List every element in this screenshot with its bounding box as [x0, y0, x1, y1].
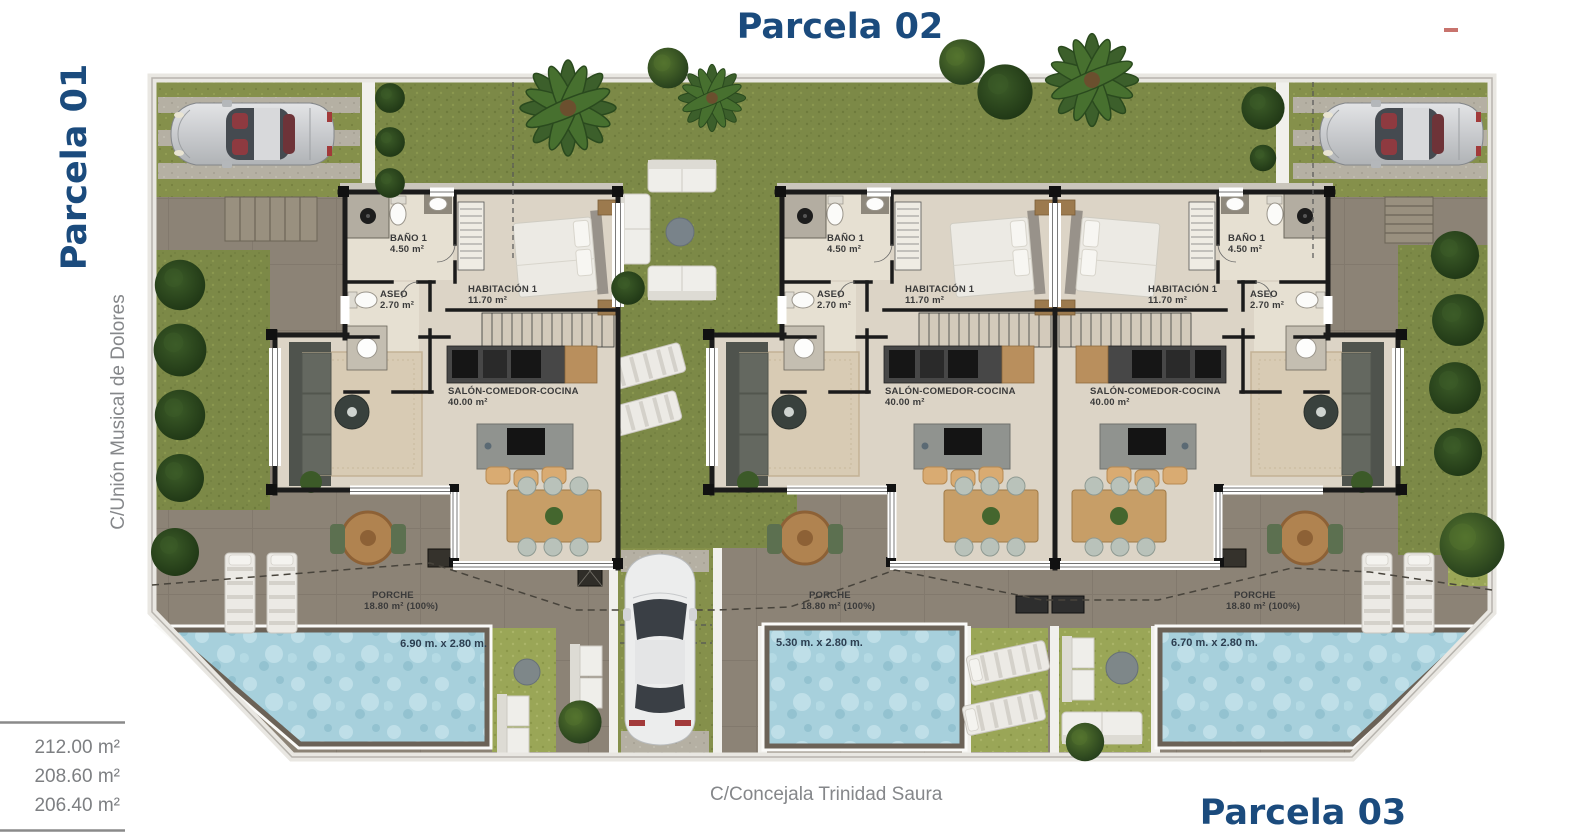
label-aseo-area: 2.70 m²: [1250, 300, 1284, 311]
label-habitacion: HABITACIÓN 1: [905, 283, 975, 295]
label-bano: BAÑO 1: [827, 233, 865, 244]
tree-icon: [1432, 294, 1484, 346]
label-bano-area: 4.50 m²: [827, 244, 861, 255]
label-porche: PORCHE: [809, 590, 851, 601]
car-bottom-center: [623, 554, 697, 745]
label-habitacion-area: 11.70 m²: [468, 295, 507, 306]
title-parcela-01: Parcela 01: [55, 64, 95, 271]
bush-icon: [375, 127, 405, 157]
label-aseo: ASEO: [817, 289, 845, 300]
tree-icon: [154, 324, 207, 377]
tree-icon: [156, 454, 204, 502]
round-garden-table: [666, 218, 694, 246]
label-salon: SALÓN-COMEDOR-COCINA: [885, 385, 1016, 397]
label-porche: PORCHE: [1234, 590, 1276, 601]
tree-icon: [939, 39, 985, 85]
street-name-bottom: C/Concejala Trinidad Saura: [710, 784, 943, 805]
outdoor-sofa: [648, 160, 716, 192]
bush-icon: [151, 528, 199, 576]
label-porche: PORCHE: [372, 590, 414, 601]
bush-icon: [1066, 723, 1104, 761]
tree-icon: [1434, 428, 1482, 476]
label-habitacion: HABITACIÓN 1: [1148, 283, 1218, 295]
label-salon-area: 40.00 m²: [885, 397, 925, 408]
sun-lounger: [267, 553, 297, 633]
area-row-2: 208.60 m²: [34, 766, 120, 787]
pool-dimension-middle: 5.30 m. x 2.80 m.: [776, 637, 863, 649]
tree-icon: [1440, 513, 1505, 578]
label-aseo-area: 2.70 m²: [817, 300, 851, 311]
label-bano-area: 4.50 m²: [390, 244, 424, 255]
label-porche-area: 18.80 m² (100%): [364, 601, 438, 612]
label-aseo-area: 2.70 m²: [380, 300, 414, 311]
palm-tree-icon: [1046, 34, 1139, 127]
label-bano: BAÑO 1: [390, 233, 428, 244]
title-parcela-03: Parcela 03: [1200, 793, 1407, 833]
label-porche-area: 18.80 m² (100%): [1226, 601, 1300, 612]
bush-icon: [375, 168, 405, 198]
pool-dimension-left: 6.90 m. x 2.80 m.: [400, 638, 487, 650]
sun-lounger: [1362, 553, 1392, 633]
area-row-3: 206.40 m²: [34, 795, 120, 816]
label-aseo: ASEO: [380, 289, 408, 300]
tree-icon: [1431, 231, 1479, 279]
bush-icon: [558, 700, 601, 743]
bush-icon: [375, 83, 405, 113]
tree-icon: [648, 48, 689, 89]
areas-table: 212.00 m² 208.60 m² 206.40 m²: [0, 723, 125, 831]
bush-icon: [611, 271, 645, 305]
entry-steps-right: [1385, 197, 1433, 243]
bush-icon: [1250, 145, 1276, 171]
car-top-left: [171, 100, 334, 168]
palm-tree-icon: [678, 64, 745, 131]
tree-icon: [977, 64, 1032, 119]
garden-top-right: [782, 78, 1287, 195]
label-salon: SALÓN-COMEDOR-COCINA: [448, 385, 579, 397]
site-plan-drawing: BAÑO 1 4.50 m² ASEO 2.70 m² HABITACIÓN 1…: [0, 0, 1574, 839]
entry-steps-left: [225, 197, 317, 241]
label-porche-area: 18.80 m² (100%): [801, 601, 875, 612]
label-salon-area: 40.00 m²: [1090, 397, 1130, 408]
label-habitacion: HABITACIÓN 1: [468, 283, 538, 295]
bush-icon: [1241, 86, 1284, 129]
label-salon: SALÓN-COMEDOR-COCINA: [1090, 385, 1221, 397]
label-salon-area: 40.00 m²: [448, 397, 488, 408]
tree-icon: [155, 390, 205, 440]
tree-icon: [1429, 362, 1481, 414]
label-bano: BAÑO 1: [1228, 233, 1266, 244]
car-top-right: [1320, 100, 1483, 168]
tree-icon: [155, 260, 205, 310]
palm-tree-icon: [520, 60, 616, 156]
label-aseo: ASEO: [1250, 289, 1278, 300]
title-parcela-02: Parcela 02: [737, 7, 944, 47]
label-habitacion-area: 11.70 m²: [1148, 295, 1187, 306]
outdoor-sofa: [648, 266, 716, 300]
area-row-1: 212.00 m²: [34, 737, 120, 758]
sun-lounger: [225, 553, 255, 633]
corner-mark: [1444, 28, 1458, 32]
sun-lounger: [1404, 553, 1434, 633]
label-habitacion-area: 11.70 m²: [905, 295, 944, 306]
pool-dimension-right: 6.70 m. x 2.80 m.: [1171, 637, 1258, 649]
street-name-left: C/Unión Musical de Dolores: [108, 294, 129, 530]
site-plan-page: BAÑO 1 4.50 m² ASEO 2.70 m² HABITACIÓN 1…: [0, 0, 1574, 839]
label-bano-area: 4.50 m²: [1228, 244, 1262, 255]
